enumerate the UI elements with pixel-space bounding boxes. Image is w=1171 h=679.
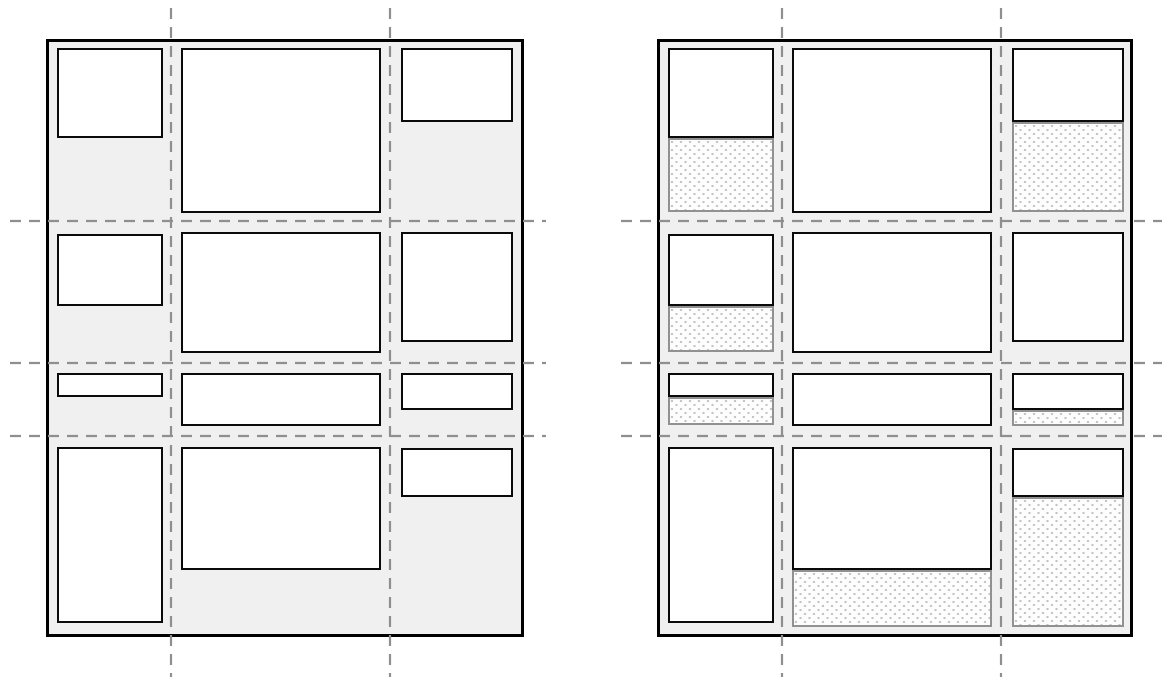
grid-item-r4c2 [792,447,992,570]
cell-remainder-r1c3 [1012,122,1124,212]
cell-remainder-r1c1 [668,138,774,212]
grid-item-r1c1 [668,48,774,138]
cell-remainder-r3c1 [668,397,774,425]
cell-remainder-r4c2 [792,570,992,627]
grid-item-r3c2 [792,373,992,426]
grid-item-r1c3 [1012,48,1124,122]
grid-item-r2c2 [792,232,992,353]
grid-item-r3c3 [1012,373,1124,410]
grid-item-r2c1 [668,234,774,306]
grid-item-r1c2 [792,48,992,213]
cell-remainder-r2c1 [668,306,774,352]
grid-item-r3c1 [668,373,774,397]
grid-diagram-canvas [0,0,1171,679]
grid-figure-dotted-cells [0,0,1171,679]
grid-item-r4c1 [668,447,774,623]
cell-remainder-r4c3 [1012,497,1124,627]
grid-item-r4c3 [1012,448,1124,497]
grid-item-r2c3 [1012,232,1124,342]
cell-remainder-r3c3 [1012,410,1124,426]
